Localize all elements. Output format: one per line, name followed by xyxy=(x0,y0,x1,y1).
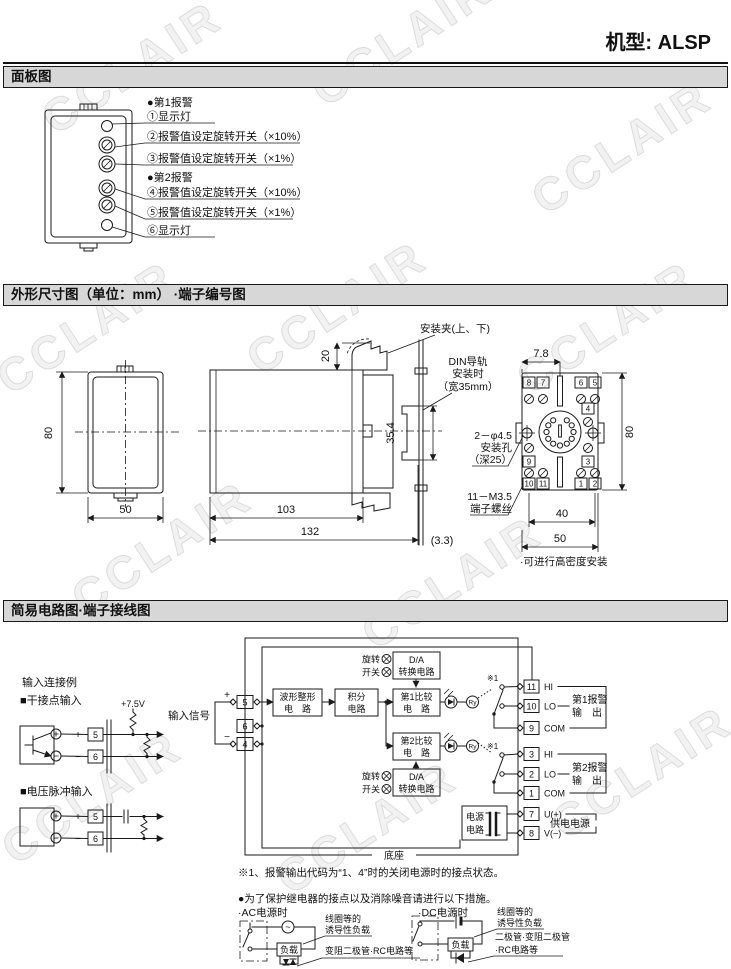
front-view: 80 50 xyxy=(43,360,180,523)
inductive-load-label: 线圈等的 xyxy=(325,913,361,924)
svg-text:~: ~ xyxy=(285,922,290,932)
comparator-1-block: 第1比较 xyxy=(400,691,432,702)
terminal-1-label: COM xyxy=(544,789,565,799)
rotary-switch-2-icon xyxy=(99,137,115,153)
terminal-11-label: HI xyxy=(544,682,553,692)
hole-label-2: 安装孔 xyxy=(481,441,513,454)
dim-50: 50 xyxy=(554,533,566,545)
da-converter-block: 转换电路 xyxy=(398,783,434,794)
alarm2-output-label: 第2报警 xyxy=(572,761,608,774)
transistor-icon xyxy=(25,733,51,756)
pulse-input-header: ■电压脉冲输入 xyxy=(20,784,93,798)
terminal-9-label: COM xyxy=(544,724,565,734)
relay-label: Ry xyxy=(469,700,478,707)
mounting-clip-icon xyxy=(352,341,387,370)
terminal-10: 10 xyxy=(526,702,536,712)
panel-diagram: ●第1报警 ①显示灯 ②报警值设定旋转开关（×10%） ③报警值设定旋转开关（×… xyxy=(0,92,731,282)
footnote-1: ※1、报警输出代码为“1、4”时的关闭电源时的接点状态。 xyxy=(238,866,504,879)
load-label: 负载 xyxy=(280,944,298,955)
load-label: 负载 xyxy=(451,939,469,950)
inductive-load-label: 线圈等的 xyxy=(497,906,533,917)
socket-terminal-7: 7 xyxy=(541,379,546,388)
hole-label-3: （深25） xyxy=(469,454,512,466)
terminal-3: 3 xyxy=(529,750,534,760)
din-label-3: （宽35mm） xyxy=(438,380,499,393)
power-circuit-block: 电路 xyxy=(466,824,484,835)
input-examples: 输入连接例 ■干接点输入 +7.5V + − 5 6 xyxy=(20,675,231,852)
socket-terminal-2: 2 xyxy=(593,480,598,489)
alarm1-output-label: 输 出 xyxy=(572,706,602,719)
ref-note-2: ※1 xyxy=(487,742,499,751)
ac-power-label: ·AC电源时 xyxy=(238,906,288,919)
dry-contact-header: ■干接点输入 xyxy=(20,693,82,707)
relay-label: Ry xyxy=(469,744,478,751)
rotary-switch-icon xyxy=(382,772,391,794)
rotary-label: 开关 xyxy=(362,667,380,678)
plus-label: + xyxy=(75,730,81,741)
terminal-8: 8 xyxy=(529,829,534,839)
dim-20: 20 xyxy=(320,350,332,362)
dim-103: 103 xyxy=(277,504,295,516)
din-label-1: DIN导轨 xyxy=(448,355,488,368)
minus-label: − xyxy=(75,834,81,845)
plus-label: + xyxy=(224,690,230,701)
ac-snubber-label: 变阻二极管·RC电路等 xyxy=(325,945,413,956)
dim-3-3: (3.3) xyxy=(431,535,454,547)
terminal-1: 1 xyxy=(529,789,534,799)
dim-132: 132 xyxy=(301,526,319,538)
clip-label: 安装夹(上、下) xyxy=(420,322,490,335)
da-converter-block: D/A xyxy=(409,655,424,665)
circuit-diagram: 输入连接例 ■干接点输入 +7.5V + − 5 6 xyxy=(0,628,731,969)
dim-40: 40 xyxy=(556,508,568,520)
socket-terminal-4: 4 xyxy=(586,405,591,414)
example-terminal-5: 5 xyxy=(93,730,98,740)
rotary-label: 旋转 xyxy=(362,771,380,782)
socket-terminal-8: 8 xyxy=(527,379,532,388)
supply-power-label: 供电电源 xyxy=(550,817,590,830)
alarm2-header: ●第2报警 xyxy=(147,170,193,184)
top-rule xyxy=(3,62,728,64)
pin-socket-circle xyxy=(539,411,581,453)
comparator-1-block: 电 路 xyxy=(403,703,430,714)
capacitor-icon xyxy=(124,810,128,823)
mounting-hole-right-icon xyxy=(585,425,601,441)
datasheet-page: CCLAIR CCLAIR CCLAIR CCLAIR CCLAIR CCLAI… xyxy=(0,0,731,969)
relay-coil-icon: Ry xyxy=(467,740,479,752)
terminal-11: 11 xyxy=(527,682,536,692)
alarm1-output-label: 第1报警 xyxy=(572,693,608,706)
front-width-dim: 50 xyxy=(119,504,131,516)
socket-height-dim: 80 xyxy=(624,426,636,438)
comparator-2-block: 第2比较 xyxy=(400,735,432,746)
examples-header: 输入连接例 xyxy=(22,675,77,689)
socket-terminal-10: 10 xyxy=(525,480,534,489)
wave-shaping-block: 波形整形 xyxy=(279,691,315,702)
terminal-2: 2 xyxy=(529,770,534,780)
comparator-2-block: 电 路 xyxy=(403,747,430,758)
terminal-8-label: V(−) xyxy=(544,829,561,839)
minus-label: − xyxy=(224,732,230,743)
power-circuit-block: 电源 xyxy=(466,811,484,822)
terminal-5: 5 xyxy=(242,698,247,708)
dc-snubber-label: 二极管·变阻二极管 xyxy=(495,931,570,942)
panel-item-3: ③报警值设定旋转开关（×1%） xyxy=(147,151,301,165)
relay-coil-icon: Ry xyxy=(467,696,479,708)
v75-label: +7.5V xyxy=(121,699,145,709)
base-label: 底座 xyxy=(384,849,404,862)
rotary-switch-icon xyxy=(382,655,391,677)
ac-source-icon: ~ xyxy=(282,921,294,933)
example-terminal-5: 5 xyxy=(93,812,98,822)
dim-7-8: 7.8 xyxy=(533,348,548,360)
high-density-note: ·可进行高密度安装 xyxy=(520,555,608,568)
indicator-light-1-icon xyxy=(102,121,113,132)
main-circuit-box: 底座 5 6 4 波形整形 电 路 积分 电路 xyxy=(230,638,532,862)
din-rail-profile xyxy=(402,406,418,460)
da-converter-block: D/A xyxy=(409,772,424,782)
relay-contact-1: ※1 xyxy=(487,674,517,728)
section-header-panel: 面板图 xyxy=(3,66,728,88)
socket-terminal-5: 5 xyxy=(593,379,598,388)
wave-shaping-block: 电 路 xyxy=(284,703,311,714)
example-terminal-6: 6 xyxy=(93,834,98,844)
terminal-7: 7 xyxy=(529,810,534,820)
hole-label-1: 2－φ4.5 xyxy=(474,430,512,442)
terminal-3-label: HI xyxy=(544,750,553,760)
terminal-2-label: LO xyxy=(544,770,556,780)
rotary-switch-5-icon xyxy=(99,197,115,213)
socket-terminal-3: 3 xyxy=(586,458,591,467)
da-converter-block: 转换电路 xyxy=(398,666,434,677)
page-title-model: 机型: ALSP xyxy=(605,26,711,55)
terminal-7-label: U(+) xyxy=(544,810,562,820)
terminal-6: 6 xyxy=(242,722,247,732)
resistor-icon xyxy=(144,733,150,758)
side-view: 20 35.4 103 132 (3.3) 安装夹(上、下) DIN导轨 安装时… xyxy=(198,322,498,547)
output-terminals: 11 10 9 3 2 1 7 8 HI LO COM HI LO COM U(… xyxy=(517,680,608,840)
panel-item-2: ②报警值设定旋转开关（×10%） xyxy=(147,129,307,143)
plus-label: + xyxy=(75,812,81,823)
diode-icon xyxy=(456,953,464,963)
panel-item-5: ⑤报警值设定旋转开关（×1%） xyxy=(147,205,301,219)
section-header-dimensions: 外形尺寸图（单位：mm） ·端子编号图 xyxy=(3,284,728,306)
alarm2-output-label: 输 出 xyxy=(572,774,602,787)
ac-protection-circuit: ~ 负载 线圈等的 诱导性负载 变阻二极管·RC电路等 xyxy=(240,913,420,966)
dc-snubber-label: ·RC电路等 xyxy=(495,944,538,955)
panel-item-6: ⑥显示灯 xyxy=(147,224,191,237)
footnotes: ※1、报警输出代码为“1、4”时的关闭电源时的接点状态。 ●为了保护继电器的接点… xyxy=(238,866,504,919)
indicator-light-6-icon xyxy=(102,220,113,231)
integrator-block: 电路 xyxy=(347,703,365,714)
dimensions-diagram: 80 50 20 xyxy=(0,315,731,595)
led-icon xyxy=(444,689,457,708)
inductive-load-label: 诱导性负载 xyxy=(325,924,370,935)
rotary-label: 旋转 xyxy=(362,654,380,665)
transformer-icon xyxy=(486,813,500,835)
rotary-switch-4-icon xyxy=(99,180,115,196)
terminal-10-label: LO xyxy=(544,702,556,712)
input-signal-label: 输入信号 xyxy=(168,709,210,722)
dim-35-4: 35.4 xyxy=(385,422,397,443)
din-label-2: 安装时 xyxy=(452,367,484,380)
socket-terminal-11: 11 xyxy=(539,480,548,489)
rotary-label: 开关 xyxy=(362,784,380,795)
socket-terminal-1: 1 xyxy=(579,480,584,489)
front-height-dim: 80 xyxy=(43,427,55,439)
resistor-icon xyxy=(130,709,136,736)
panel-item-4: ④报警值设定旋转开关（×10%） xyxy=(147,185,307,199)
example-terminal-6: 6 xyxy=(93,752,98,762)
screw-label-2: 端子螺丝 xyxy=(470,502,512,515)
terminal-4: 4 xyxy=(242,740,247,750)
section-header-circuit: 简易电路图·端子接线图 xyxy=(3,600,728,622)
rotary-switch-3-icon xyxy=(99,156,115,172)
integrator-block: 积分 xyxy=(347,691,365,702)
minus-label: − xyxy=(75,752,81,763)
terminal-9: 9 xyxy=(529,724,534,734)
panel-item-1: ①显示灯 xyxy=(147,110,191,123)
inductive-load-label: 诱导性负载 xyxy=(497,917,542,928)
ref-note-1: ※1 xyxy=(487,674,499,683)
socket-terminal-6: 6 xyxy=(579,379,584,388)
resistor-icon xyxy=(141,815,147,840)
footnote-2: ●为了保护继电器的接点以及消除噪音请进行以下措施。 xyxy=(238,892,496,905)
led-icon xyxy=(444,733,457,752)
screw-label-1: 11－M3.5 xyxy=(467,491,512,503)
relay-contact-2: ※1 xyxy=(487,742,517,793)
alarm1-header: ●第1报警 xyxy=(147,95,193,109)
socket-terminal-9: 9 xyxy=(527,458,532,467)
